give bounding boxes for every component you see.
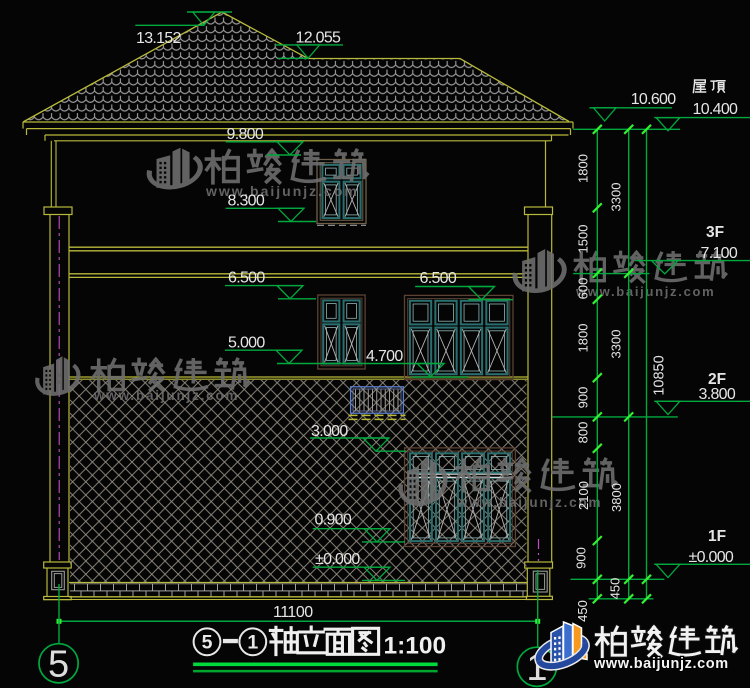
svg-text:9.800: 9.800 [227,126,264,143]
svg-text:1:100: 1:100 [384,633,447,660]
svg-text:3800: 3800 [609,483,624,512]
svg-text:5: 5 [202,632,213,654]
svg-text:450: 450 [608,578,623,600]
svg-text:10850: 10850 [652,355,668,395]
svg-text:11100: 11100 [273,604,313,621]
svg-text:0.900: 0.900 [315,512,352,529]
svg-text:8.300: 8.300 [228,193,265,210]
svg-text:900: 900 [574,547,589,569]
svg-text:www.baijunjz.com: www.baijunjz.com [93,388,239,403]
svg-text:900: 900 [576,387,591,409]
svg-text:600: 600 [576,278,591,300]
svg-text:1800: 1800 [576,324,591,353]
svg-text:3F: 3F [706,224,724,241]
svg-text:1F: 1F [708,528,726,545]
svg-text:6.500: 6.500 [420,270,457,287]
svg-text:3.800: 3.800 [699,386,736,403]
svg-text:10.400: 10.400 [693,101,739,118]
svg-text:5.000: 5.000 [228,334,265,351]
svg-text:3300: 3300 [609,183,624,212]
svg-text:2100: 2100 [576,481,591,510]
svg-text:6.500: 6.500 [228,270,265,287]
svg-text:800: 800 [576,422,591,444]
svg-text:±0.000: ±0.000 [689,549,734,566]
svg-text:1800: 1800 [576,154,591,183]
svg-text:450: 450 [575,600,590,622]
svg-text:2F: 2F [708,371,726,388]
svg-text:1500: 1500 [576,225,591,254]
svg-text:10.600: 10.600 [631,91,677,108]
svg-text:1: 1 [247,632,258,654]
svg-text:12.055: 12.055 [296,30,342,47]
svg-text:4.700: 4.700 [366,348,403,365]
svg-text:13.152: 13.152 [136,30,182,47]
svg-text:www.baijunjz.com: www.baijunjz.com [575,284,715,299]
svg-text:www.baijunjz.com: www.baijunjz.com [593,656,729,672]
svg-text:±0.000: ±0.000 [315,551,360,568]
svg-text:3300: 3300 [609,330,624,359]
svg-text:5: 5 [48,644,69,686]
svg-text:3.000: 3.000 [311,423,348,440]
svg-text:7.100: 7.100 [701,245,738,262]
